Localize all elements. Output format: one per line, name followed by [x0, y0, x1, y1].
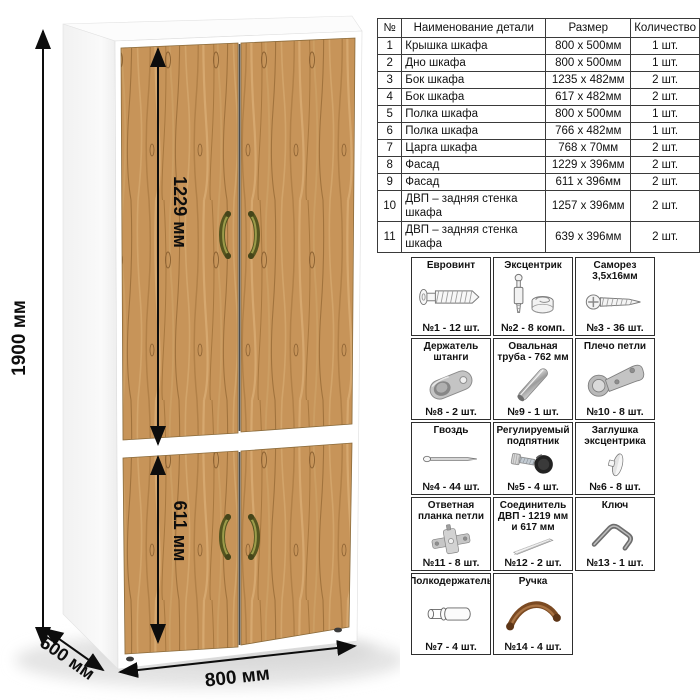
- hardware-item-count: №6 - 8 шт.: [589, 481, 641, 493]
- lower-door-dimension-label: 611 мм: [170, 501, 190, 562]
- hardware-item-name: Евровинт: [427, 260, 475, 271]
- hardware-grid: Евровинт №1 - 12 шт. Эксцентрик: [411, 257, 655, 655]
- part-number: 1: [378, 38, 402, 55]
- hardware-item-euro-screw: Евровинт №1 - 12 шт.: [411, 257, 491, 336]
- upper-door-dimension-label: 1229 мм: [170, 176, 190, 248]
- height-dimension-label: 1900 мм: [9, 300, 30, 376]
- hardware-item-name: Эксцентрик: [504, 260, 561, 271]
- hardware-item-name: Полкодержатель: [411, 576, 491, 587]
- table-row: 7Царга шкафа768 x 70мм2 шт.: [378, 140, 700, 157]
- table-row: 6Полка шкафа766 x 482мм1 шт.: [378, 123, 700, 140]
- part-size: 1235 x 482мм: [546, 72, 631, 89]
- col-header-quantity: Количество: [631, 19, 700, 38]
- part-number: 10: [378, 191, 402, 222]
- part-size: 768 x 70мм: [546, 140, 631, 157]
- hardware-item-cam-cover: Заглушка эксцентрика №6 - 8 шт.: [575, 422, 655, 495]
- self-tapping-screw-icon: [577, 282, 653, 322]
- part-quantity: 1 шт.: [631, 106, 700, 123]
- table-row: 5Полка шкафа800 x 500мм1 шт.: [378, 106, 700, 123]
- table-row: 1Крышка шкафа800 x 500мм1 шт.: [378, 38, 700, 55]
- hdf-connector-icon: [495, 534, 571, 557]
- part-size: 800 x 500мм: [546, 38, 631, 55]
- table-row: 11ДВП – задняя стенка шкафа639 x 396мм2 …: [378, 222, 700, 253]
- hardware-item-count: №7 - 4 шт.: [425, 641, 477, 653]
- cabinet-foot: [126, 657, 134, 662]
- hardware-item-hdf-connector: Соединитель ДВП - 1219 мм и 617 мм №12 -…: [493, 497, 573, 571]
- cabinet-side-face: [63, 24, 118, 669]
- hardware-item-name: Овальная труба - 762 мм: [495, 341, 571, 363]
- part-name: ДВП – задняя стенка шкафа: [402, 222, 546, 253]
- col-header-name: Наименование детали: [402, 19, 546, 38]
- hardware-item-name: Ключ: [602, 500, 628, 511]
- part-number: 9: [378, 174, 402, 191]
- part-size: 800 x 500мм: [546, 106, 631, 123]
- hardware-item-shelf-pin: Полкодержатель №7 - 4 шт.: [411, 573, 491, 655]
- part-number: 6: [378, 123, 402, 140]
- part-name: Фасад: [402, 157, 546, 174]
- assembly-sheet: 1900 мм 1229 мм 611 мм 800 мм 500 мм № Н…: [0, 0, 700, 700]
- hardware-item-count: №12 - 2 шт.: [504, 557, 561, 569]
- hardware-item-count: №9 - 1 шт.: [507, 406, 559, 418]
- part-size: 639 x 396мм: [546, 222, 631, 253]
- part-number: 11: [378, 222, 402, 253]
- part-number: 4: [378, 89, 402, 106]
- shelf-pin-icon: [413, 587, 489, 641]
- hardware-item-adjustable-foot: Регулируемый подпятник №5 - 4 шт.: [493, 422, 573, 495]
- part-number: 2: [378, 55, 402, 72]
- hardware-item-name: Соединитель ДВП - 1219 мм и 617 мм: [495, 500, 571, 534]
- part-name: Царга шкафа: [402, 140, 546, 157]
- hardware-item-count: №1 - 12 шт.: [422, 322, 479, 334]
- euro-screw-icon: [413, 271, 489, 322]
- part-quantity: 2 шт.: [631, 174, 700, 191]
- hardware-item-name: Держатель штанги: [413, 341, 489, 363]
- hardware-item-count: №4 - 44 шт.: [422, 481, 479, 493]
- part-name: ДВП – задняя стенка шкафа: [402, 191, 546, 222]
- hardware-item-name: Ручка: [519, 576, 548, 587]
- rod-holder-icon: [413, 363, 489, 406]
- hardware-item-name: Регулируемый подпятник: [495, 425, 571, 447]
- part-number: 8: [378, 157, 402, 174]
- hardware-item-hex-key: Ключ №13 - 1 шт.: [575, 497, 655, 571]
- hardware-item-count: №11 - 8 шт.: [423, 557, 480, 569]
- cabinet-foot: [334, 628, 342, 633]
- part-name: Полка шкафа: [402, 123, 546, 140]
- hinge-arm-icon: [577, 352, 653, 406]
- part-size: 617 x 482мм: [546, 89, 631, 106]
- hardware-item-name: Гвоздь: [434, 425, 469, 436]
- hardware-item-name: Плечо петли: [584, 341, 646, 352]
- part-quantity: 1 шт.: [631, 55, 700, 72]
- table-row: 2Дно шкафа800 x 500мм1 шт.: [378, 55, 700, 72]
- part-quantity: 2 шт.: [631, 191, 700, 222]
- wardrobe-drawing: 1900 мм 1229 мм 611 мм 800 мм 500 мм: [0, 0, 400, 700]
- part-quantity: 2 шт.: [631, 222, 700, 253]
- wardrobe-illustration: 1900 мм 1229 мм 611 мм 800 мм 500 мм: [0, 0, 400, 700]
- table-row: 8Фасад1229 x 396мм2 шт.: [378, 157, 700, 174]
- hinge-plate-icon: [413, 522, 489, 557]
- cam-cover-icon: [577, 447, 653, 481]
- oval-tube-icon: [495, 363, 571, 406]
- table-row: 4Бок шкафа617 x 482мм2 шт.: [378, 89, 700, 106]
- part-size: 766 x 482мм: [546, 123, 631, 140]
- part-size: 1257 x 396мм: [546, 191, 631, 222]
- part-name: Фасад: [402, 174, 546, 191]
- part-name: Бок шкафа: [402, 72, 546, 89]
- table-row: 9Фасад611 x 396мм2 шт.: [378, 174, 700, 191]
- hardware-item-rod-holder: Держатель штанги №8 - 2 шт.: [411, 338, 491, 420]
- hardware-item-hinge-plate: Ответная планка петли №11 - 8 шт.: [411, 497, 491, 571]
- hardware-item-count: №10 - 8 шт.: [586, 406, 643, 418]
- part-quantity: 2 шт.: [631, 140, 700, 157]
- part-size: 800 x 500мм: [546, 55, 631, 72]
- cabinet-body: [63, 16, 362, 669]
- part-size: 611 x 396мм: [546, 174, 631, 191]
- hex-key-icon: [577, 511, 653, 557]
- part-name: Дно шкафа: [402, 55, 546, 72]
- col-header-size: Размер: [546, 19, 631, 38]
- part-name: Полка шкафа: [402, 106, 546, 123]
- part-number: 3: [378, 72, 402, 89]
- hardware-item-count: №14 - 4 шт.: [504, 641, 561, 653]
- cam-lock-icon: [495, 271, 571, 322]
- part-size: 1229 x 396мм: [546, 157, 631, 174]
- part-quantity: 2 шт.: [631, 89, 700, 106]
- part-number: 5: [378, 106, 402, 123]
- hardware-item-name: Заглушка эксцентрика: [577, 425, 653, 447]
- part-quantity: 1 шт.: [631, 123, 700, 140]
- hardware-item-name: Ответная планка петли: [413, 500, 489, 522]
- nail-icon: [413, 436, 489, 481]
- hardware-item-oval-tube: Овальная труба - 762 мм №9 - 1 шт.: [493, 338, 573, 420]
- part-quantity: 2 шт.: [631, 157, 700, 174]
- hardware-item-count: №8 - 2 шт.: [425, 406, 477, 418]
- hardware-item-handle: Ручка №14 - 4 шт.: [493, 573, 573, 655]
- hardware-item-self-tapping-screw: Саморез 3,5х16мм №3 - 36 шт.: [575, 257, 655, 336]
- handle-icon: [495, 587, 571, 641]
- hardware-item-count: №13 - 1 шт.: [586, 557, 643, 569]
- hardware-item-nail: Гвоздь №4 - 44 шт.: [411, 422, 491, 495]
- col-header-number: №: [378, 19, 402, 38]
- table-row: 3Бок шкафа1235 x 482мм2 шт.: [378, 72, 700, 89]
- part-quantity: 2 шт.: [631, 72, 700, 89]
- part-name: Бок шкафа: [402, 89, 546, 106]
- table-header-row: № Наименование детали Размер Количество: [378, 19, 700, 38]
- table-row: 10ДВП – задняя стенка шкафа1257 x 396мм2…: [378, 191, 700, 222]
- part-quantity: 1 шт.: [631, 38, 700, 55]
- hardware-item-count: №3 - 36 шт.: [586, 322, 643, 334]
- part-name: Крышка шкафа: [402, 38, 546, 55]
- part-number: 7: [378, 140, 402, 157]
- hardware-item-name: Саморез 3,5х16мм: [577, 260, 653, 282]
- hardware-empty-cell: [575, 573, 655, 655]
- hardware-item-count: №2 - 8 комп.: [501, 322, 565, 334]
- hardware-item-cam-lock: Эксцентрик №2 - 8 комп.: [493, 257, 573, 336]
- hardware-item-count: №5 - 4 шт.: [507, 481, 559, 493]
- adjustable-foot-icon: [495, 447, 571, 481]
- parts-table: № Наименование детали Размер Количество …: [377, 18, 700, 253]
- hardware-item-hinge-arm: Плечо петли №10 - 8 шт.: [575, 338, 655, 420]
